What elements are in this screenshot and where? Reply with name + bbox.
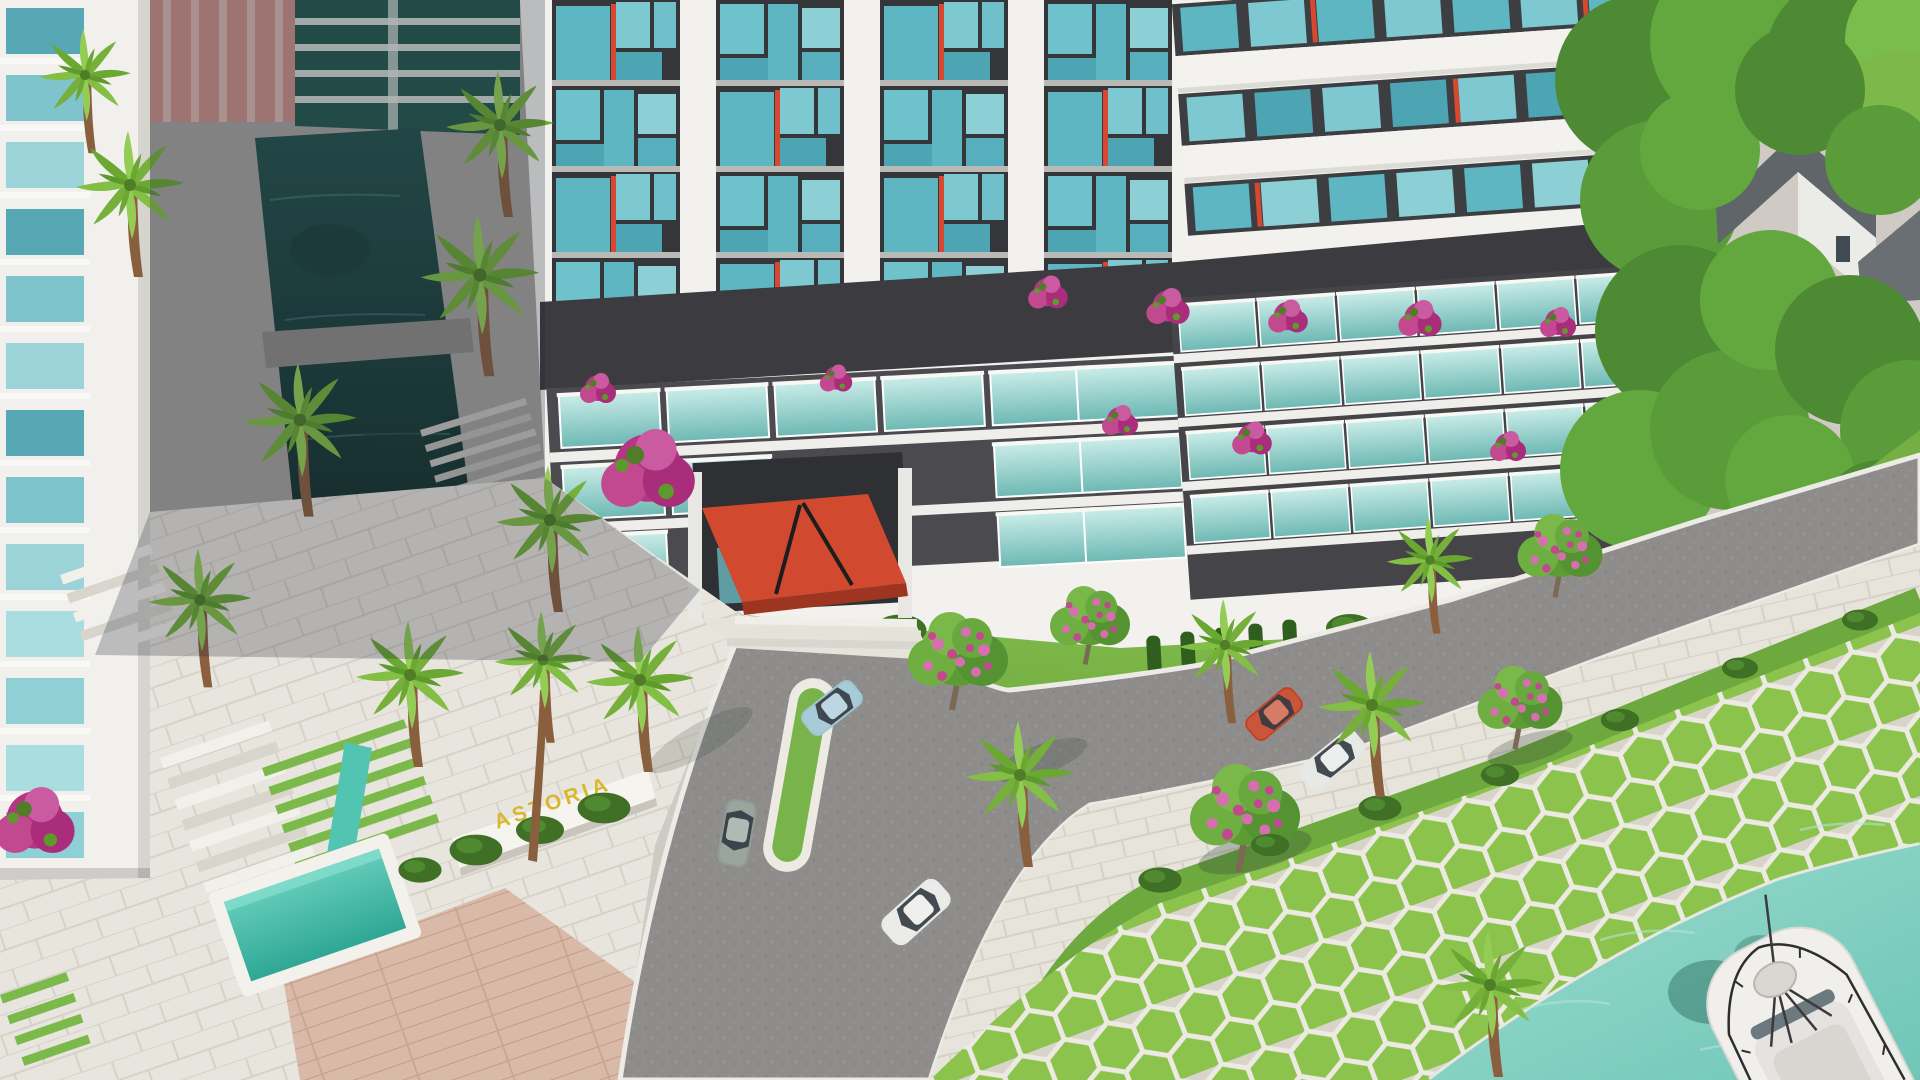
- aerial-render: ASTORIA: [0, 0, 1920, 1080]
- entrance-steps: [727, 616, 925, 649]
- rendering-canvas: ASTORIA: [0, 0, 1920, 1080]
